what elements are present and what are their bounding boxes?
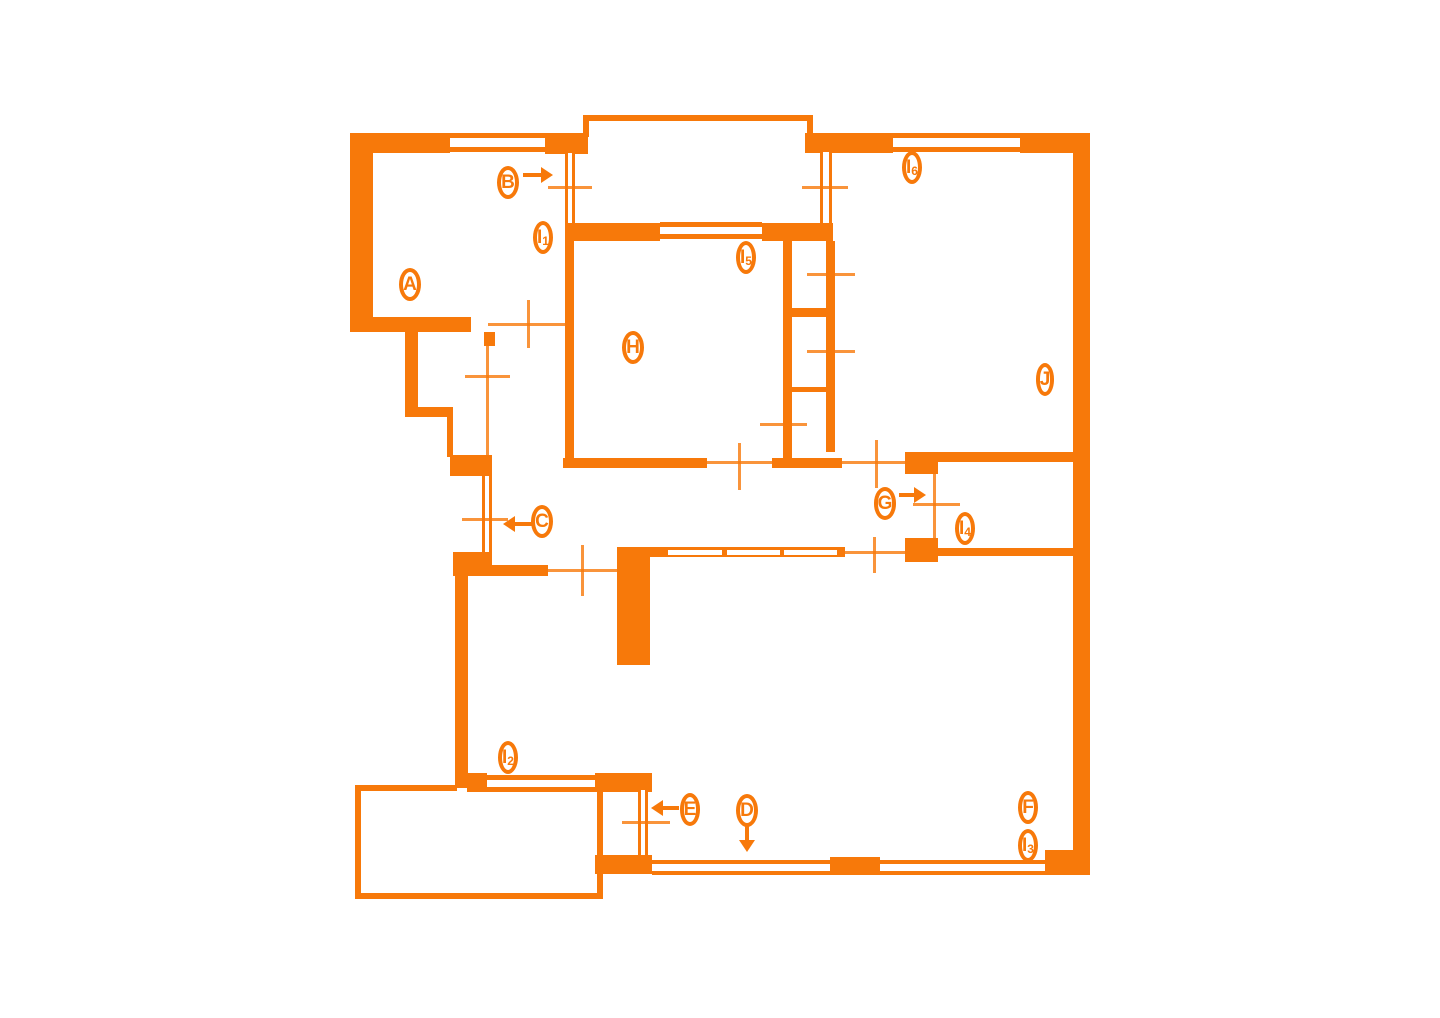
- dim-e-door: [622, 821, 670, 824]
- room-label-subscript: 6: [911, 165, 918, 177]
- room-label-text: A: [403, 275, 417, 294]
- wall-i4-closet-bottom-wall: [938, 548, 1073, 556]
- room-label-circle-I5: I5: [736, 241, 756, 274]
- arrow-line-B: [523, 173, 541, 177]
- wall-balcony-railing-left: [583, 115, 589, 137]
- room-label-circle-I4: I4: [955, 512, 975, 545]
- wall-shaft-divider-1: [792, 308, 826, 317]
- room-label-circle-F: F: [1018, 791, 1038, 824]
- room-label-circle-E: E: [680, 793, 701, 826]
- wall-hall-wall: [490, 565, 548, 576]
- arrow-line-D: [745, 824, 749, 840]
- arrow-icon-C: [503, 516, 515, 532]
- room-label-circle-C: C: [531, 505, 553, 538]
- room-label-circle-I2: I2: [498, 741, 518, 774]
- room-label-subscript: 1: [542, 235, 549, 247]
- room-label-circle-H: H: [622, 331, 644, 364]
- wall-e-door-bottom-block: [595, 855, 652, 874]
- room-label-text: H: [626, 338, 640, 357]
- arrow-icon-B: [541, 167, 553, 183]
- room-label-circle-J: J: [1036, 363, 1055, 396]
- room-label-text: C: [535, 512, 549, 531]
- wall-shaft-bottom-wall: [772, 458, 842, 468]
- dim-passage-h: [842, 461, 905, 464]
- wall-i2-bottom-left-block: [467, 773, 487, 792]
- room-label-circle-I6: I6: [902, 151, 922, 184]
- wall-top-block-j-left: [805, 133, 893, 153]
- wall-center-pillar: [617, 547, 650, 665]
- wall-left-connector-wall: [447, 417, 453, 457]
- wall-shaft-divider-2: [792, 387, 826, 392]
- dim-i4-door-v: [933, 474, 936, 538]
- dim-lr-opening-v: [873, 537, 876, 573]
- wall-terrace-railing-right: [597, 790, 603, 893]
- wall-i2-left-wall: [455, 565, 468, 788]
- wall-outer-wall-top-a: [350, 133, 450, 153]
- window-i5: [660, 222, 762, 239]
- dim-closet-door-h: [465, 375, 510, 378]
- wall-c-door-upper-block: [450, 455, 492, 476]
- room-label-text: D: [740, 801, 754, 820]
- room-label-subscript: 4: [964, 526, 971, 538]
- dim-shaft-3: [760, 423, 807, 426]
- window-a-top: [450, 133, 545, 152]
- lr-window-pane-2: [727, 550, 780, 555]
- floor-plan: ABI1I5I6HJCGI4I2EDFI3: [0, 0, 1440, 1018]
- dim-window-b: [548, 186, 592, 189]
- room-label-text: B: [501, 173, 515, 192]
- wall-terrace-railing-left: [355, 785, 361, 899]
- dim-a-door-v: [527, 300, 530, 348]
- wall-terrace-railing-top: [357, 785, 457, 791]
- wall-bottom-mid-block: [830, 857, 880, 875]
- dim-i4-door-h: [913, 503, 960, 506]
- room-label-text: G: [878, 494, 893, 513]
- arrow-line-C: [515, 522, 533, 526]
- wall-a-bottom-wall: [350, 317, 471, 332]
- dim-shaft-1: [807, 273, 855, 276]
- wall-j-bottom-wall: [938, 452, 1073, 462]
- room-label-text: J: [1040, 370, 1051, 389]
- wall-closet-right-stub: [484, 332, 495, 346]
- dim-shaft-2: [807, 350, 855, 353]
- wall-balcony-railing-right: [807, 115, 813, 137]
- arrow-icon-E: [651, 800, 663, 816]
- arrow-icon-D: [739, 840, 755, 852]
- wall-h-left-wall: [565, 241, 574, 462]
- room-label-subscript: 2: [507, 755, 514, 767]
- arrow-line-G: [899, 493, 914, 497]
- wall-j-door-jamb-top: [905, 452, 938, 474]
- window-i2: [487, 775, 595, 792]
- wall-closet-left-wall: [405, 332, 418, 416]
- room-label-circle-D: D: [736, 794, 758, 827]
- wall-h-bottom-wall: [563, 458, 707, 468]
- wall-j-door-jamb-bottom: [905, 538, 938, 562]
- wall-outer-wall-left-a: [350, 135, 373, 331]
- room-label-text: E: [684, 800, 697, 819]
- lr-window-pane-3: [784, 550, 837, 555]
- dim-c-door: [462, 518, 508, 521]
- wall-h-top-wall-left: [565, 223, 660, 241]
- room-label-subscript: 3: [1027, 843, 1034, 855]
- room-label-text: F: [1022, 798, 1034, 817]
- dim-closet-door-v: [486, 346, 489, 455]
- wall-top-block-j-right: [1020, 133, 1090, 153]
- window-d-left: [652, 860, 830, 875]
- wall-top-block-balcony-left: [545, 133, 588, 154]
- lr-window-pane-1: [668, 550, 722, 555]
- wall-balcony-railing-top: [583, 115, 813, 121]
- window-c: [482, 476, 492, 552]
- wall-outer-wall-right: [1073, 133, 1090, 868]
- wall-closet-bottom-wall: [405, 407, 453, 417]
- arrow-icon-G: [914, 487, 926, 503]
- window-d-right: [880, 860, 1045, 875]
- room-label-subscript: 5: [745, 255, 752, 267]
- wall-h-top-wall-right: [762, 223, 833, 241]
- room-label-circle-I1: I1: [533, 221, 553, 254]
- dim-hall-door-v: [581, 545, 584, 596]
- dim-window-j: [802, 186, 848, 189]
- room-label-circle-A: A: [399, 268, 421, 301]
- arrow-line-E: [663, 806, 679, 810]
- window-i6: [893, 133, 1020, 152]
- room-label-circle-G: G: [874, 487, 897, 520]
- dim-passage-v: [875, 440, 878, 488]
- room-label-circle-I3: I3: [1018, 829, 1038, 862]
- room-label-circle-B: B: [497, 166, 519, 199]
- wall-terrace-railing-bottom: [355, 893, 603, 899]
- dim-h-door-v: [738, 443, 741, 490]
